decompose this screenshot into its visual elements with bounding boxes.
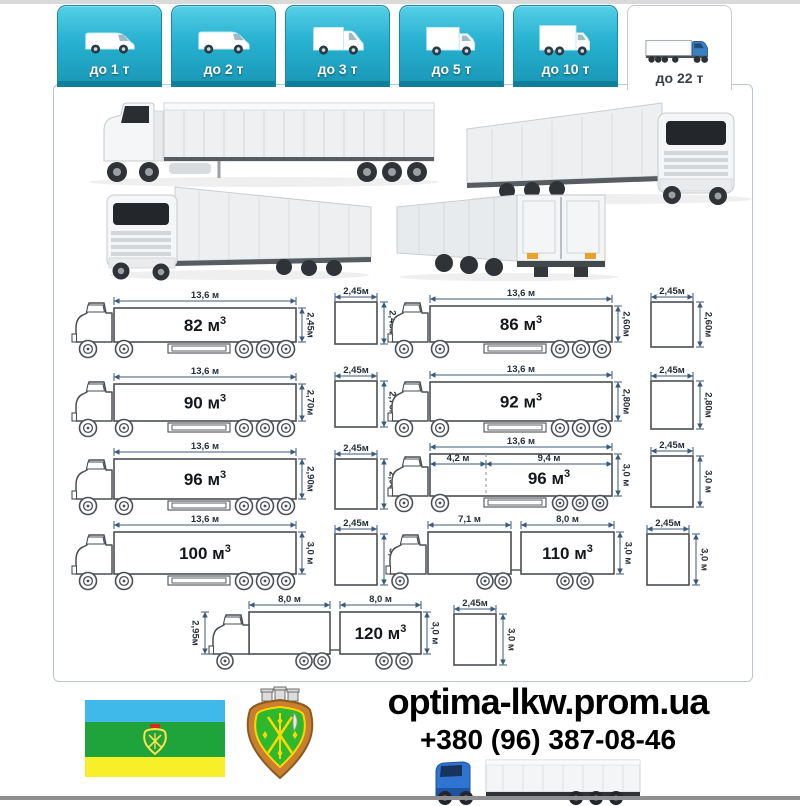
diagram-120m3: 8,0 м8,0 м120 м33,0 м2,95м2,45м3,0 м <box>191 596 519 676</box>
truck-info-panel: 13,6 м82 м32,45м2,45м2,45м 13,6 м86 м32,… <box>53 84 753 682</box>
top-border-strip <box>0 0 800 4</box>
box-truck-icon <box>422 21 482 61</box>
tab-up-to-1t[interactable]: до 1 т <box>57 5 162 87</box>
site-title: optima-lkw.prom.ua <box>352 682 744 722</box>
svg-text:3,0 м: 3,0 м <box>623 542 634 565</box>
svg-text:3,0 м: 3,0 м <box>506 628 517 651</box>
svg-text:2,60м: 2,60м <box>703 312 714 338</box>
svg-text:13,6 м: 13,6 м <box>191 366 219 377</box>
svg-text:4,2 м: 4,2 м <box>447 453 470 464</box>
svg-text:13,6 м: 13,6 м <box>507 436 535 447</box>
svg-text:8,0 м: 8,0 м <box>369 594 392 605</box>
tab-label: до 10 т <box>542 61 590 78</box>
van-icon <box>194 21 254 61</box>
svg-text:9,4 м: 9,4 м <box>538 453 561 464</box>
svg-text:100 м3: 100 м3 <box>179 543 231 563</box>
flag <box>85 700 225 777</box>
svg-text:2,45м: 2,45м <box>655 518 681 529</box>
svg-text:120 м3: 120 м3 <box>355 623 407 643</box>
coat-of-arms <box>238 687 322 783</box>
tall-van-icon <box>308 21 368 61</box>
tab-label: до 5 т <box>432 61 472 78</box>
svg-text:8,0 м: 8,0 м <box>556 514 579 525</box>
flag-emblem-icon <box>138 723 172 756</box>
flag-green-stripe <box>85 722 225 757</box>
svg-text:2,45м: 2,45м <box>305 312 316 338</box>
svg-text:2,90м: 2,90м <box>305 466 316 492</box>
svg-text:2,45м: 2,45м <box>462 598 488 609</box>
diagram-110m3: 7,1 м8,0 м110 м33,0 м2,45м3,0 м <box>384 516 712 596</box>
svg-text:3,0 м: 3,0 м <box>621 464 632 487</box>
svg-text:2,45м: 2,45м <box>343 443 369 454</box>
page: { "tabs": [ {"label": "до 1 т", "icon": … <box>0 0 800 800</box>
diagram-90m3: 13,6 м90 м32,70м2,45м2,70м <box>68 363 400 443</box>
van-icon <box>80 21 140 61</box>
svg-text:96 м3: 96 м3 <box>184 469 226 489</box>
diagram-96m3: 13,6 м96 м32,90м2,45м2,90м <box>68 441 400 521</box>
svg-text:2,45м: 2,45м <box>343 365 369 376</box>
svg-text:90 м3: 90 м3 <box>184 393 226 413</box>
tab-label: до 1 т <box>90 61 130 78</box>
svg-text:82 м3: 82 м3 <box>184 315 226 335</box>
tab-label: до 22 т <box>656 70 704 87</box>
svg-text:2,70м: 2,70м <box>305 390 316 416</box>
capacity-tab-bar: до 1 т до 2 т до 3 т <box>57 5 732 90</box>
svg-text:3,0 м: 3,0 м <box>703 470 714 493</box>
svg-text:13,6 м: 13,6 м <box>507 364 535 375</box>
svg-text:2,45м: 2,45м <box>343 518 369 529</box>
flag-blue-stripe <box>85 700 225 722</box>
svg-text:110 м3: 110 м3 <box>542 543 593 563</box>
diagram-82m3: 13,6 м82 м32,45м2,45м2,45м <box>68 284 400 364</box>
svg-text:2,80м: 2,80м <box>703 392 714 418</box>
svg-text:3,0 м: 3,0 м <box>430 622 441 645</box>
svg-text:13,6 м: 13,6 м <box>507 288 535 299</box>
footer-contact-block: optima-lkw.prom.ua +380 (96) 387-08-46 <box>352 682 744 756</box>
svg-text:3,0 м: 3,0 м <box>699 548 710 571</box>
svg-text:92 м3: 92 м3 <box>500 392 542 412</box>
svg-text:3,0 м: 3,0 м <box>305 542 316 565</box>
svg-text:2,80м: 2,80м <box>621 389 632 415</box>
svg-text:2,95м: 2,95м <box>190 620 201 646</box>
diagram-100m3: 13,6 м100 м33,0 м2,45м3,0 м <box>68 516 400 596</box>
svg-text:13,6 м: 13,6 м <box>191 441 219 452</box>
svg-text:2,45м: 2,45м <box>343 286 369 297</box>
truck-photo-side-view <box>69 93 459 193</box>
svg-text:13,6 м: 13,6 м <box>191 514 219 525</box>
tab-up-to-5t[interactable]: до 5 т <box>399 5 504 87</box>
diagram-96m3-split: 13,6 м4,2 м9,4 м96 м33,0 м2,45м3,0 м <box>384 438 716 518</box>
big-box-truck-icon <box>536 21 596 61</box>
svg-text:86 м3: 86 м3 <box>500 314 542 334</box>
diagram-92m3: 13,6 м92 м32,80м2,45м2,80м <box>384 363 716 443</box>
svg-text:2,45м: 2,45м <box>659 365 685 376</box>
truck-photo-front-left <box>99 181 379 281</box>
diagram-86m3: 13,6 м86 м32,60м2,45м2,60м <box>384 284 716 364</box>
tab-up-to-3t[interactable]: до 3 т <box>285 5 390 87</box>
truck-photo-rear-view <box>389 189 624 281</box>
bottom-border-strip <box>0 796 800 800</box>
svg-text:7,1 м: 7,1 м <box>458 514 481 525</box>
tab-up-to-22t[interactable]: до 22 т <box>627 5 732 90</box>
svg-text:2,45м: 2,45м <box>659 440 685 451</box>
svg-text:2,60м: 2,60м <box>621 311 632 337</box>
svg-text:2,45м: 2,45м <box>659 286 685 297</box>
phone-number: +380 (96) 387-08-46 <box>352 724 744 756</box>
tab-label: до 2 т <box>204 61 244 78</box>
tab-up-to-2t[interactable]: до 2 т <box>171 5 276 87</box>
svg-text:13,6 м: 13,6 м <box>191 290 219 301</box>
semi-truck-icon <box>644 30 716 70</box>
svg-text:8,0 м: 8,0 м <box>278 594 301 605</box>
tab-up-to-10t[interactable]: до 10 т <box>513 5 618 87</box>
svg-text:96 м3: 96 м3 <box>528 468 570 488</box>
flag-yellow-stripe <box>85 757 225 777</box>
tab-label: до 3 т <box>318 61 358 78</box>
